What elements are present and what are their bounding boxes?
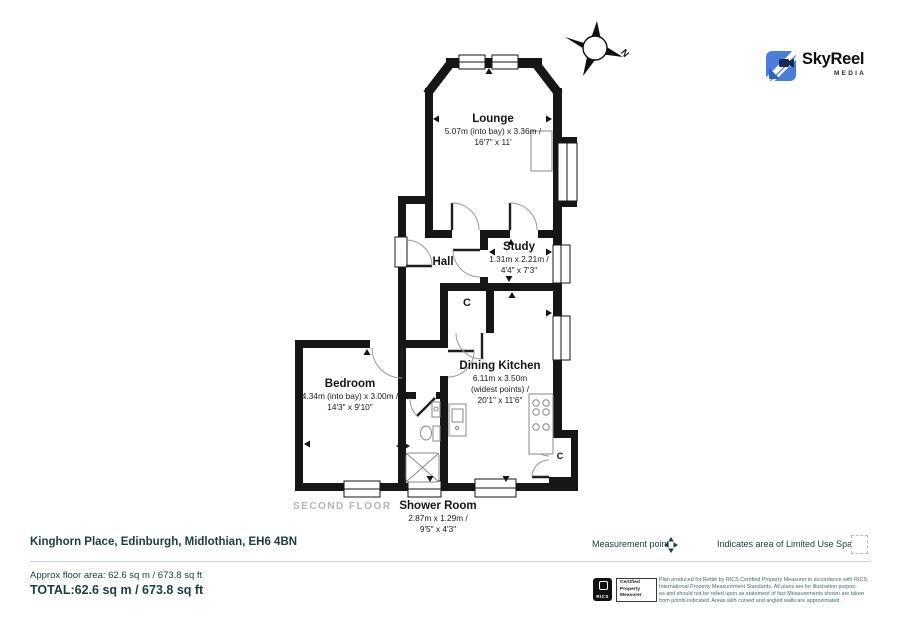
room-label-bedroom: Bedroom 4.34m (into bay) x 3.00m / 14'3"… — [302, 378, 398, 413]
compass-rose-icon — [565, 21, 623, 76]
property-address: Kinghorn Place, Edinburgh, Midlothian, E… — [30, 536, 297, 548]
skyreel-logo: SkyReel MEDIA — [766, 50, 868, 84]
disclaimer-text: Plan produced for Rettie by RICS Certifi… — [659, 577, 867, 605]
rics-logo: RICS — [593, 578, 612, 601]
floor-label: SECOND FLOOR — [293, 501, 392, 512]
measurement-point-icon — [664, 537, 678, 553]
legend-limited-use: Indicates area of Limited Use Space — [717, 539, 862, 549]
floorplan-page: { "branding": { "logo_text": "SkyReel", … — [0, 0, 900, 636]
skyreel-logo-icon — [766, 51, 796, 81]
legend-measurement-point: Measurement point — [592, 539, 669, 549]
approx-floor-area: Approx floor area: 62.6 sq m / 673.8 sq … — [30, 570, 202, 581]
cupboard-label-1: C — [463, 297, 471, 309]
room-label-shower-room: Shower Room 2.87m x 1.29m / 9'5" x 4'3" — [399, 500, 476, 535]
rics-wordmark: RICS — [593, 594, 612, 599]
room-label-lounge: Lounge 5.07m (into bay) x 3.36m / 16'7" … — [445, 113, 541, 148]
room-label-dining-kitchen: Dining Kitchen 6.11m x 3.50m (widest poi… — [459, 360, 540, 406]
certified-measurer-badge: Certified Property Measurer — [616, 578, 657, 602]
cupboard-label-2: C — [557, 451, 564, 461]
limited-use-swatch — [851, 535, 868, 554]
brand-name: SkyReel — [802, 50, 864, 69]
footer-divider — [30, 561, 871, 562]
room-label-study: Study 1.31m x 2.21m / 4'4" x 7'3" — [489, 241, 549, 276]
total-floor-area: TOTAL:62.6 sq m / 673.8 sq ft — [30, 583, 203, 597]
rics-emblem-icon — [599, 581, 608, 590]
room-label-hall: Hall — [432, 256, 453, 269]
brand-sub: MEDIA — [802, 70, 866, 77]
